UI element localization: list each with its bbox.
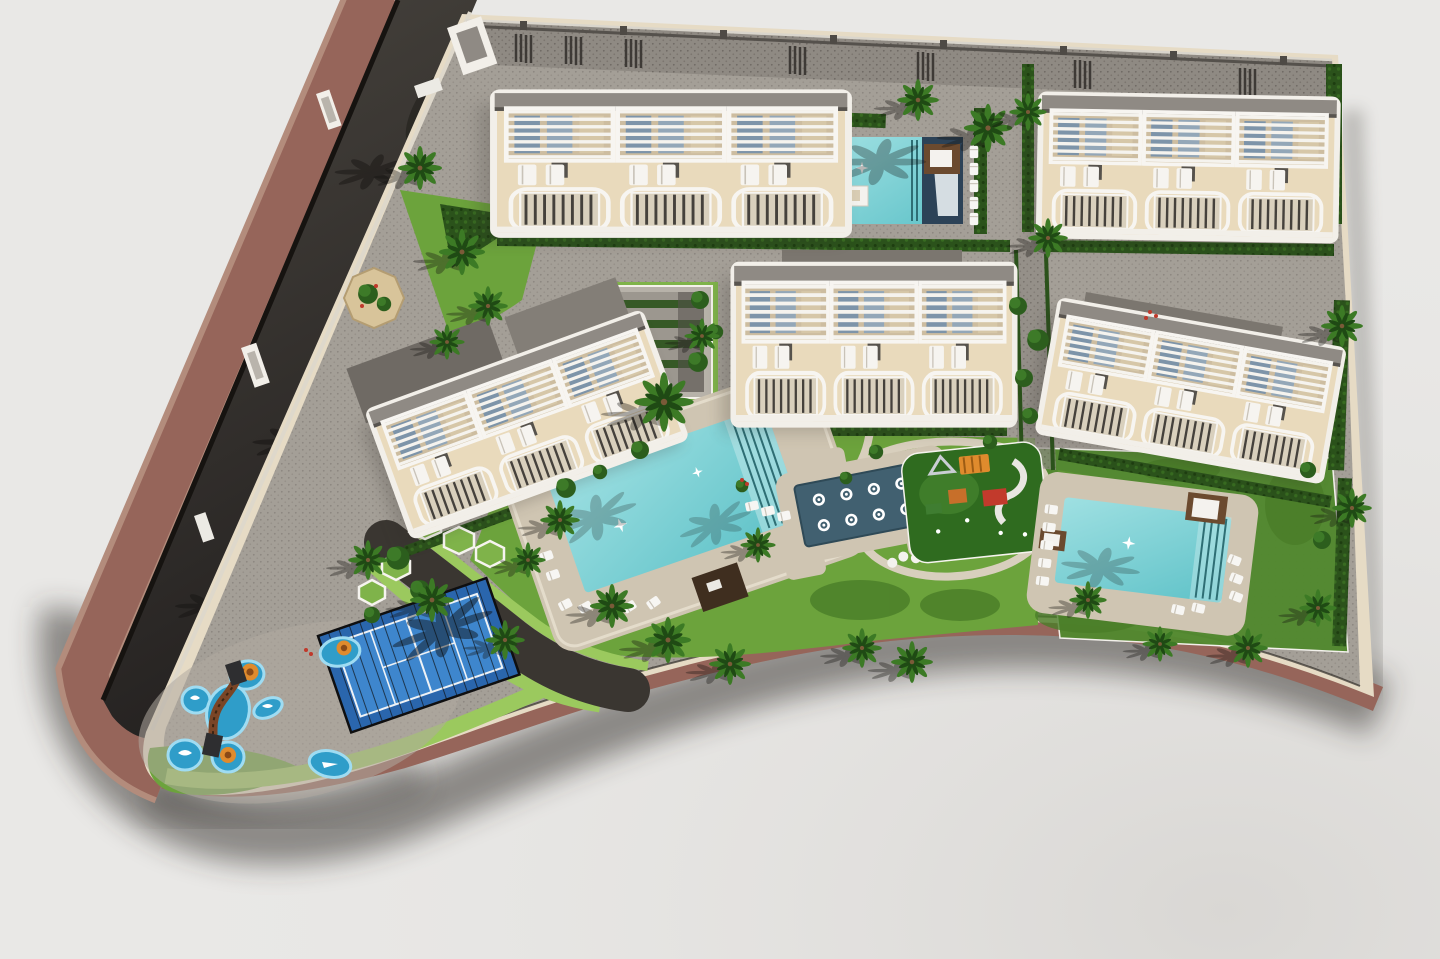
building-3	[721, 262, 1017, 432]
planter-octagon	[344, 268, 404, 328]
play-module-amber	[948, 488, 967, 504]
playground	[900, 440, 1051, 564]
play-module-green	[925, 503, 942, 515]
play-module-orange	[959, 454, 991, 475]
building-1	[478, 89, 852, 241]
play-module-red	[982, 488, 1008, 506]
aerial-render	[0, 0, 1440, 959]
building-2	[1026, 91, 1341, 247]
